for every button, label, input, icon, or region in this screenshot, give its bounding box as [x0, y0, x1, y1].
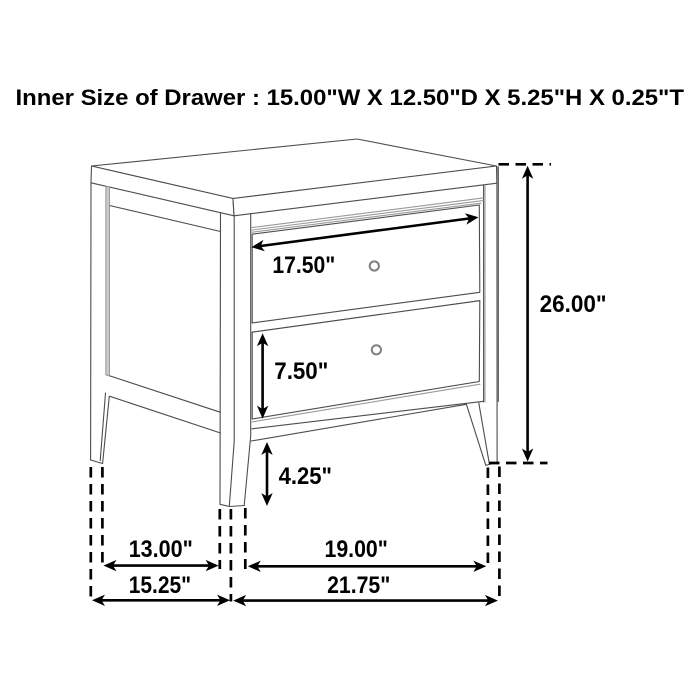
- svg-text:26.00": 26.00": [540, 291, 607, 318]
- svg-text:17.50": 17.50": [272, 252, 335, 279]
- svg-text:15.25": 15.25": [129, 572, 191, 599]
- svg-text:4.25": 4.25": [279, 463, 332, 490]
- svg-text:19.00": 19.00": [325, 536, 388, 563]
- svg-text:13.00": 13.00": [129, 536, 193, 563]
- svg-text:21.75": 21.75": [327, 572, 390, 599]
- svg-text:7.50": 7.50": [274, 358, 328, 385]
- svg-text:Inner Size of Drawer : 15.00"W: Inner Size of Drawer : 15.00"W X 12.50"D…: [16, 85, 685, 110]
